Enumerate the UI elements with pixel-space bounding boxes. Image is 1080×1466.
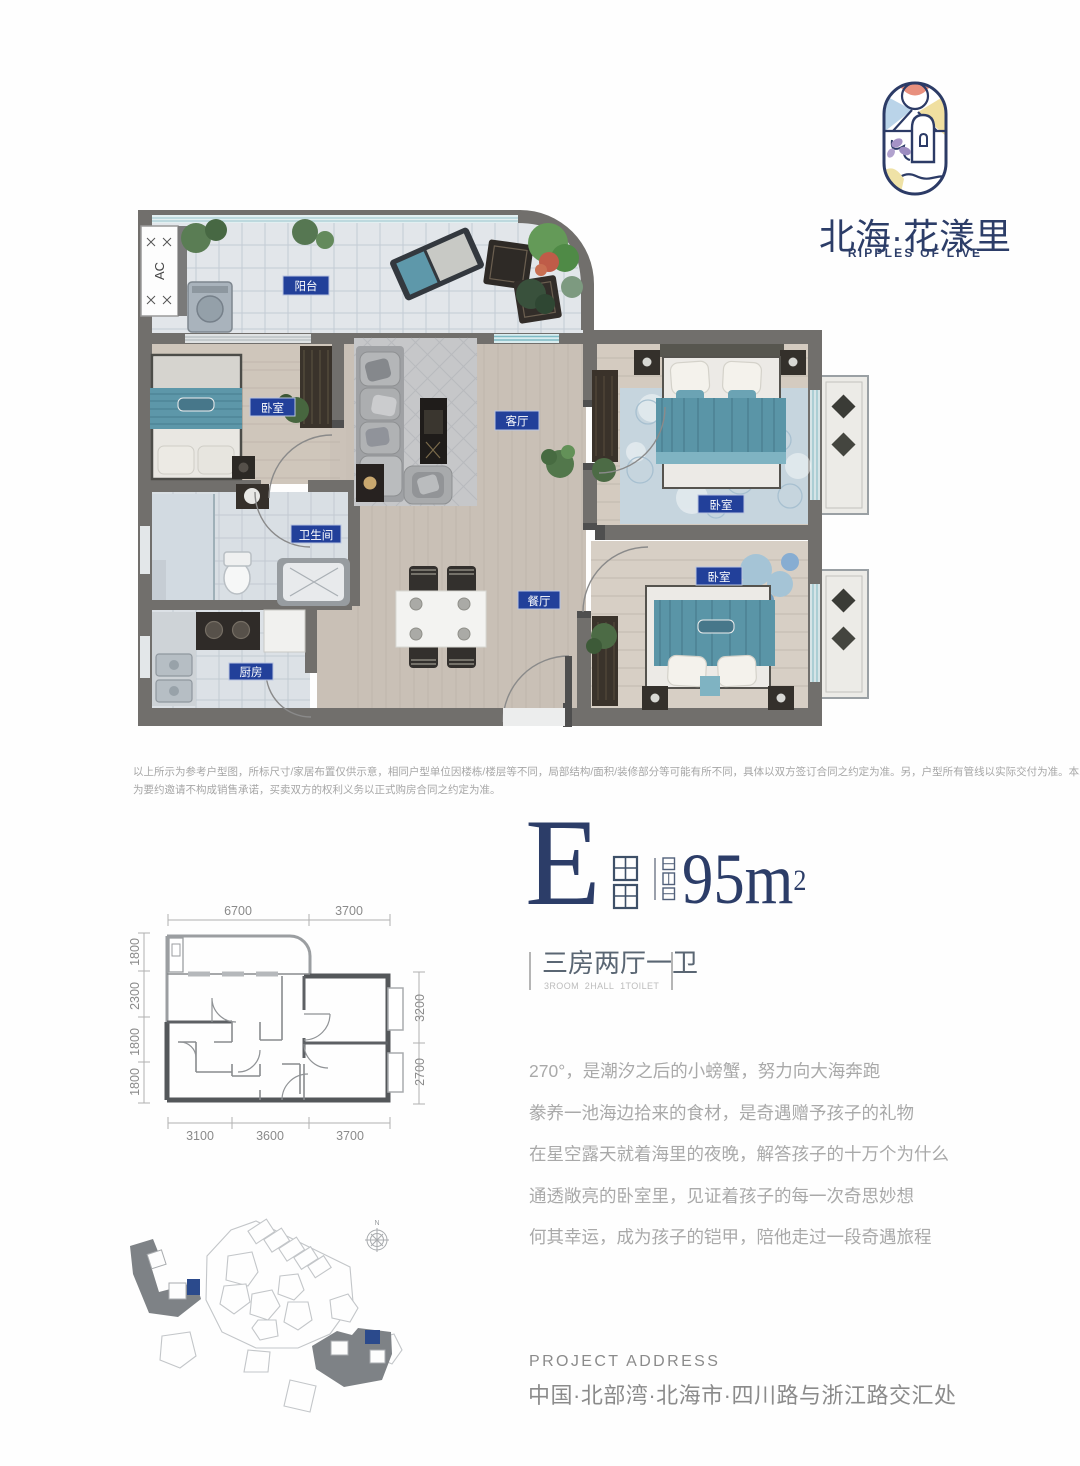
- svg-text:3700: 3700: [335, 904, 363, 918]
- svg-text:3200: 3200: [413, 994, 427, 1022]
- svg-text:1800: 1800: [128, 938, 142, 966]
- svg-text:卧室: 卧室: [261, 401, 284, 415]
- svg-text:1800: 1800: [128, 1068, 142, 1096]
- svg-text:客厅: 客厅: [506, 414, 529, 428]
- svg-text:2300: 2300: [128, 982, 142, 1010]
- svg-text:1800: 1800: [128, 1028, 142, 1056]
- svg-text:厨房: 厨房: [240, 666, 263, 679]
- svg-text:3700: 3700: [336, 1129, 364, 1143]
- svg-text:N: N: [374, 1220, 379, 1227]
- svg-text:2700: 2700: [413, 1058, 427, 1086]
- svg-text:3100: 3100: [186, 1129, 214, 1143]
- svg-text:6700: 6700: [224, 904, 252, 918]
- svg-text:卧室: 卧室: [710, 498, 733, 512]
- svg-text:AC: AC: [152, 262, 167, 280]
- svg-text:卧室: 卧室: [708, 570, 731, 584]
- svg-text:餐厅: 餐厅: [528, 594, 551, 608]
- svg-text:3600: 3600: [256, 1129, 284, 1143]
- svg-text:阳台: 阳台: [295, 279, 318, 293]
- svg-text:卫生间: 卫生间: [299, 528, 334, 542]
